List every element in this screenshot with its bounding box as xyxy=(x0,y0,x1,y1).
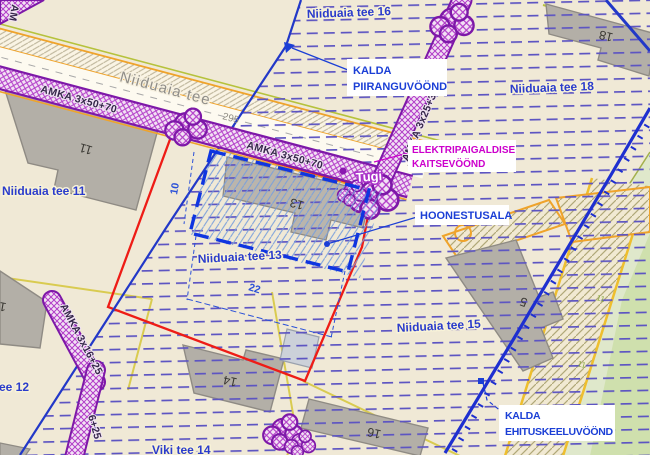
building-number-16: 16 xyxy=(366,425,383,442)
leader-dot xyxy=(324,241,330,247)
parcel-label-viki14: Viki tee 14 xyxy=(152,443,211,455)
building-number-12: 12 xyxy=(0,298,7,314)
dimension-depth: 10 xyxy=(168,182,182,196)
callout-ehituskeeluvoond: KALDA EHITUSKEELUVÖÖND xyxy=(499,405,615,441)
callout-piiranguvoond: KALDA PIIRANGUVÖÖND xyxy=(347,59,447,96)
callout-line2: EHITUSKEELUVÖÖND xyxy=(505,425,614,438)
callout-line2: KAITSEVÖÖND xyxy=(412,157,485,170)
parcel-label-tee18: Niiduaia tee 18 xyxy=(510,79,595,96)
callout-line1: KALDA xyxy=(353,65,392,77)
building-number-14: 14 xyxy=(222,373,239,390)
callout-hoonestusala: HOONESTUSALA xyxy=(415,205,512,225)
callout-line2: PIIRANGUVÖÖND xyxy=(353,80,447,93)
callout-line1: HOONESTUSALA xyxy=(420,210,512,222)
detail-plan-map: Niiduaia tee 295 AMKA 3x50+70 AMKA 3x50+… xyxy=(0,0,650,455)
support-label: Tugi xyxy=(355,168,382,185)
callout-line1: ELEKTRIPAIGALDISE xyxy=(412,145,515,156)
map-canvas: Niiduaia tee 295 AMKA 3x50+70 AMKA 3x50+… xyxy=(0,0,650,455)
parcel-label-tee12: ee 12 xyxy=(0,380,29,394)
cable-node-dot xyxy=(340,168,347,175)
parcel-label-tee16: Niiduaia tee 16 xyxy=(307,4,392,21)
callout-elektripaigaldise: ELEKTRIPAIGALDISE KAITSEVÖÖND xyxy=(408,140,516,172)
parcel-label-tee11: Niiduaia tee 11 xyxy=(2,184,86,198)
callout-line1: KALDA xyxy=(505,410,541,422)
leader-square xyxy=(478,378,484,384)
